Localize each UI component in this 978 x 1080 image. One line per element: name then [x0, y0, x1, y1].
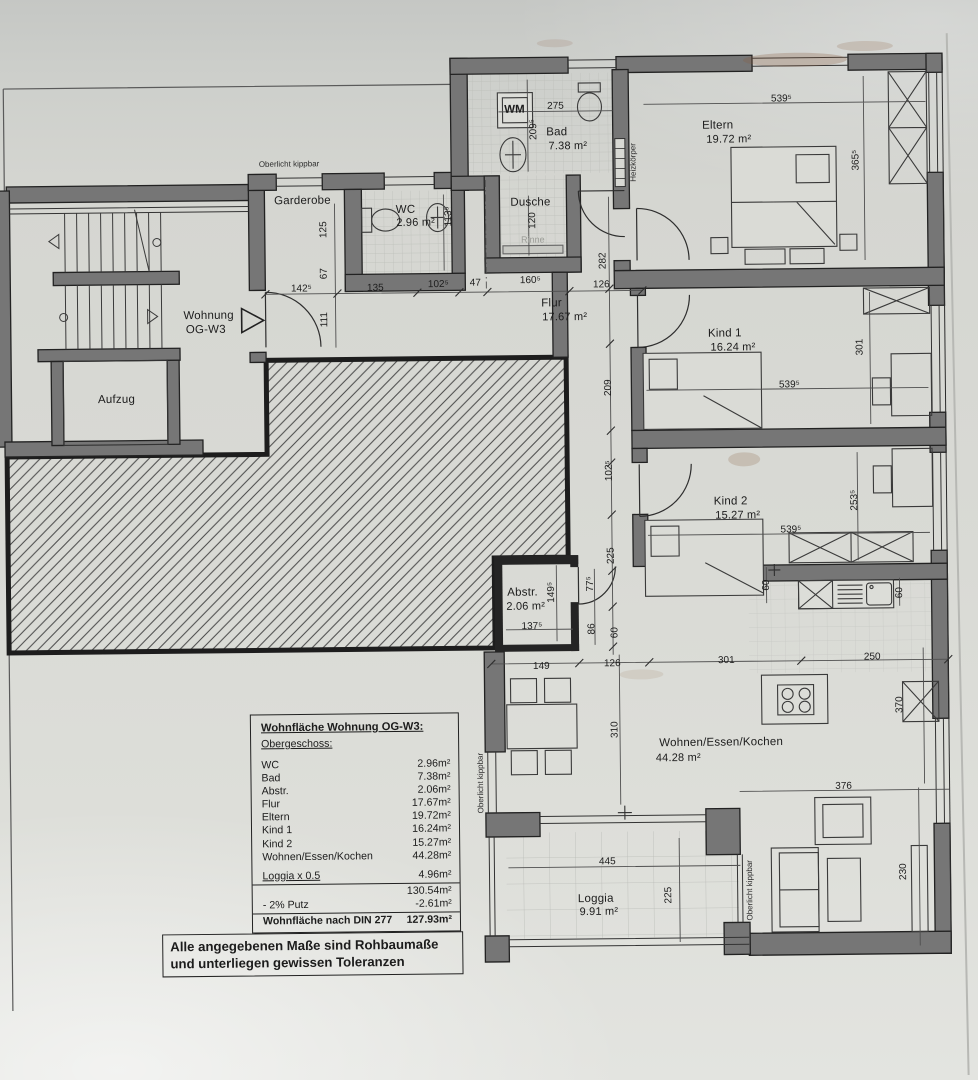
note-line1: Alle angegebenen Maße sind Rohbaumaße	[170, 935, 456, 955]
floor-plan-photo: Garderobe WC 2.96 m² Bad 7.38 m² Dusche …	[0, 0, 978, 1080]
subtotal-value: 130.54m²	[407, 884, 452, 898]
wardrobe-eltern	[888, 71, 927, 183]
dim-label: 67	[319, 268, 330, 279]
row-label: WC	[261, 759, 279, 772]
row-value: 2.96m²	[417, 757, 450, 770]
dim-label: 102⁵	[428, 279, 449, 290]
dim-label: 102⁵	[604, 460, 615, 481]
dim-label: 301	[718, 655, 735, 666]
dim-label: 125	[318, 221, 329, 238]
row-value: 15.27m²	[412, 836, 451, 850]
chair-kind2	[873, 466, 891, 493]
room-label-wc: WC	[396, 204, 416, 216]
room-area-wohnen: 44.28 m²	[656, 752, 701, 764]
kitchen-counter	[798, 580, 893, 609]
kitchen-island-stove	[761, 674, 828, 724]
dim-label: 539⁵	[780, 524, 801, 535]
dim-label: 539⁵	[779, 379, 800, 390]
room-label-aufzug: Aufzug	[98, 394, 135, 406]
room-area-abstr: 2.06 m²	[506, 600, 545, 612]
row-label: Wohnen/Essen/Kochen	[262, 850, 373, 864]
washing-machine-label: WM	[504, 104, 525, 116]
dim-label: 301	[854, 339, 865, 356]
bed-eltern	[710, 146, 857, 265]
dim-label: 77⁵	[585, 576, 596, 591]
row-value: 16.24m²	[412, 823, 451, 837]
dim-label: 160⁵	[520, 275, 541, 286]
dim-label: 365⁵	[850, 150, 861, 171]
floor-plan-drawing	[0, 0, 978, 1080]
dim-label: 253⁵	[849, 490, 860, 511]
dim-label: 230	[898, 863, 909, 880]
bed-kind1	[643, 352, 762, 429]
room-label-kind1: Kind 1	[708, 327, 742, 339]
room-area-bad: 7.38 m²	[548, 140, 587, 152]
hatched-area	[6, 357, 569, 653]
dim-label: 47	[470, 278, 481, 289]
dim-label: 137⁵	[521, 621, 542, 632]
dim-label: 209	[603, 379, 614, 396]
room-label-eltern: Eltern	[702, 119, 733, 131]
dim-label: 250	[864, 651, 881, 662]
dim-label: 111	[319, 312, 330, 327]
wardrobe-kind1	[863, 287, 929, 314]
table-row-putz: - 2% Putz-2.61m²	[263, 897, 452, 912]
window-note-top: Oberlicht kippbar	[259, 159, 320, 169]
tolerance-note: Alle angegebenen Maße sind Rohbaumaße un…	[162, 931, 463, 977]
window-note-loggia: Oberlicht kippbar	[745, 860, 755, 921]
row-value: 17.67m²	[412, 797, 451, 811]
dim-label: 86	[586, 623, 597, 634]
dim-label: 142⁵	[291, 283, 312, 294]
area-table-subtitle: Obergeschoss:	[261, 736, 450, 750]
dim-label: 445	[599, 856, 616, 867]
table-row-total: Wohnfläche nach DIN 277127.93m²	[263, 913, 452, 928]
row-label: Kind 1	[262, 825, 292, 838]
room-label-abstr: Abstr.	[507, 586, 538, 598]
dining-set	[506, 678, 577, 775]
desk-kind1	[891, 353, 932, 415]
dim-label: 539⁵	[771, 93, 792, 104]
window-note-left: Oberlicht kippbar	[476, 753, 486, 814]
row-value: -2.61m²	[415, 897, 452, 910]
dim-label: 60	[609, 627, 620, 638]
table-row: Wohnen/Essen/Kochen44.28m²	[262, 849, 451, 864]
dim-label: 282	[597, 252, 608, 269]
dim-label: 310	[609, 721, 620, 738]
room-label-wohnen: Wohnen/Essen/Kochen	[659, 736, 783, 749]
room-label-dusche: Dusche	[510, 196, 550, 208]
row-label: Flur	[262, 798, 280, 811]
radiator-note: Heizkörper	[628, 143, 637, 182]
dim-label: 376	[835, 781, 852, 792]
row-label: Bad	[261, 772, 280, 785]
dim-label: 120	[527, 212, 538, 229]
row-label: Eltern	[262, 811, 290, 824]
entry-arrow-icon	[242, 308, 264, 332]
plan-sheet: Garderobe WC 2.96 m² Bad 7.38 m² Dusche …	[0, 0, 978, 1080]
room-area-wc: 2.96 m²	[396, 217, 435, 229]
dim-label: 149	[533, 661, 550, 672]
row-value: 2.06m²	[418, 784, 451, 797]
bed-kind2	[645, 519, 764, 596]
row-label: Wohnfläche nach DIN 277	[263, 914, 392, 928]
drain-note: Rinne	[521, 234, 545, 244]
room-area-loggia: 9.91 m²	[579, 906, 618, 918]
room-label-loggia: Loggia	[578, 893, 614, 905]
row-value: 4.96m²	[418, 868, 451, 881]
shower-drain	[503, 245, 563, 254]
table-row-loggia: Loggia x 0.54.96m²	[262, 868, 451, 883]
dim-label: 275	[547, 101, 564, 112]
row-label: Abstr.	[262, 785, 289, 798]
room-area-kind2: 15.27 m²	[715, 509, 760, 521]
room-label-kind2: Kind 2	[714, 495, 748, 507]
room-area-kind1: 16.24 m²	[710, 341, 755, 353]
room-area-flur: 17.67 m²	[542, 311, 587, 323]
area-table: Wohnfläche Wohnung OG-W3: Obergeschoss: …	[250, 712, 461, 933]
room-label-flur: Flur	[541, 297, 562, 309]
desk-kind2	[892, 448, 933, 506]
row-value: 127.93m²	[407, 913, 452, 927]
room-area-eltern: 19.72 m²	[706, 133, 751, 145]
row-label: Loggia x 0.5	[262, 870, 320, 884]
row-value: 44.28m²	[412, 849, 451, 863]
row-label: Kind 2	[262, 838, 292, 851]
row-label: - 2% Putz	[263, 899, 309, 913]
dim-label: 225	[606, 547, 617, 564]
dim-label: 149⁵	[546, 582, 557, 603]
dim-label: 126	[604, 658, 621, 669]
dim-label: 126	[593, 279, 610, 290]
room-label-bad: Bad	[546, 126, 567, 138]
dim-label: 370	[894, 696, 905, 713]
dim-label: 113⁵	[443, 206, 454, 226]
dim-label: 60	[894, 587, 905, 598]
dim-label: 60	[761, 579, 772, 590]
chair-kind1	[872, 378, 890, 405]
radiator	[615, 139, 626, 187]
dim-label: 209⁵	[528, 119, 539, 140]
unit-label-line2: OG-W3	[186, 324, 226, 336]
area-table-title: Wohnfläche Wohnung OG-W3:	[261, 720, 450, 734]
row-value: 19.72m²	[412, 810, 451, 824]
dim-label: 225	[663, 887, 674, 904]
wardrobe-kind2	[789, 532, 913, 563]
room-label-garderobe: Garderobe	[274, 195, 331, 208]
note-line2: und unterliegen gewissen Toleranzen	[170, 952, 456, 972]
unit-label-line1: Wohnung	[183, 310, 234, 323]
row-value: 7.38m²	[417, 771, 450, 784]
dim-label: 135	[367, 283, 384, 294]
